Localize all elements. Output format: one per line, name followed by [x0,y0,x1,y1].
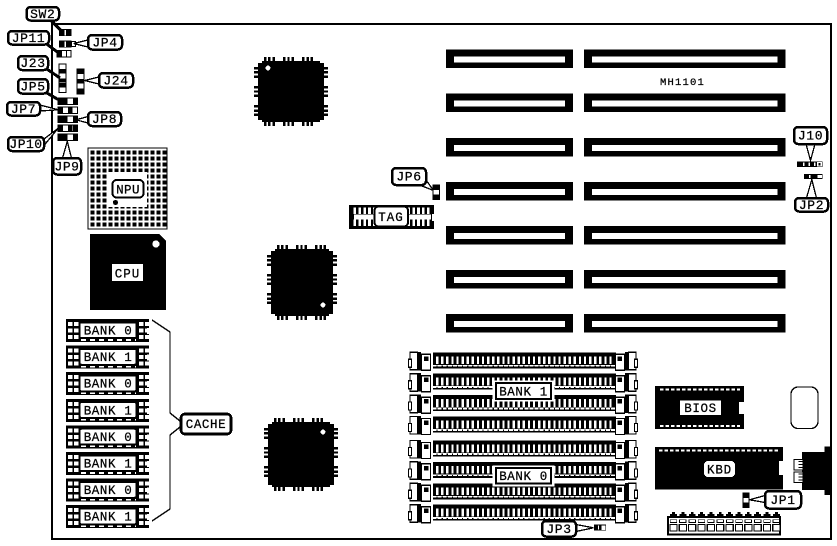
svg-text:JP11: JP11 [12,31,46,46]
svg-text:BANK 0: BANK 0 [84,378,133,392]
svg-text:NPU: NPU [116,184,140,198]
svg-text:BANK 1: BANK 1 [84,511,133,525]
svg-text:SW2: SW2 [30,7,55,22]
svg-text:JP10: JP10 [9,137,42,152]
svg-text:BANK 1: BANK 1 [84,458,133,472]
svg-text:JP7: JP7 [11,102,36,117]
svg-text:BANK 0: BANK 0 [84,431,133,445]
svg-text:JP1: JP1 [770,493,795,508]
svg-text:BANK 0: BANK 0 [499,470,548,484]
svg-text:J23: J23 [20,56,45,71]
svg-text:JP3: JP3 [546,522,571,537]
svg-text:JP2: JP2 [799,198,824,213]
svg-text:BANK 0: BANK 0 [84,484,133,498]
svg-text:MH1101: MH1101 [660,77,705,89]
svg-text:CPU: CPU [115,268,141,282]
svg-text:TAG: TAG [378,211,404,225]
svg-text:BANK 1: BANK 1 [499,386,548,400]
svg-text:BANK 1: BANK 1 [84,351,133,365]
svg-text:BANK 1: BANK 1 [84,404,133,418]
svg-text:BANK 0: BANK 0 [84,325,133,339]
svg-text:CACHE: CACHE [186,418,227,432]
svg-text:JP4: JP4 [92,35,117,50]
svg-text:JP9: JP9 [55,159,80,174]
svg-text:J24: J24 [103,73,128,88]
svg-text:JP5: JP5 [20,79,45,94]
svg-text:JP8: JP8 [92,112,117,127]
svg-text:KBD: KBD [707,464,732,478]
svg-text:BIOS: BIOS [684,402,716,416]
svg-text:J10: J10 [798,129,823,144]
svg-text:JP6: JP6 [396,170,421,185]
